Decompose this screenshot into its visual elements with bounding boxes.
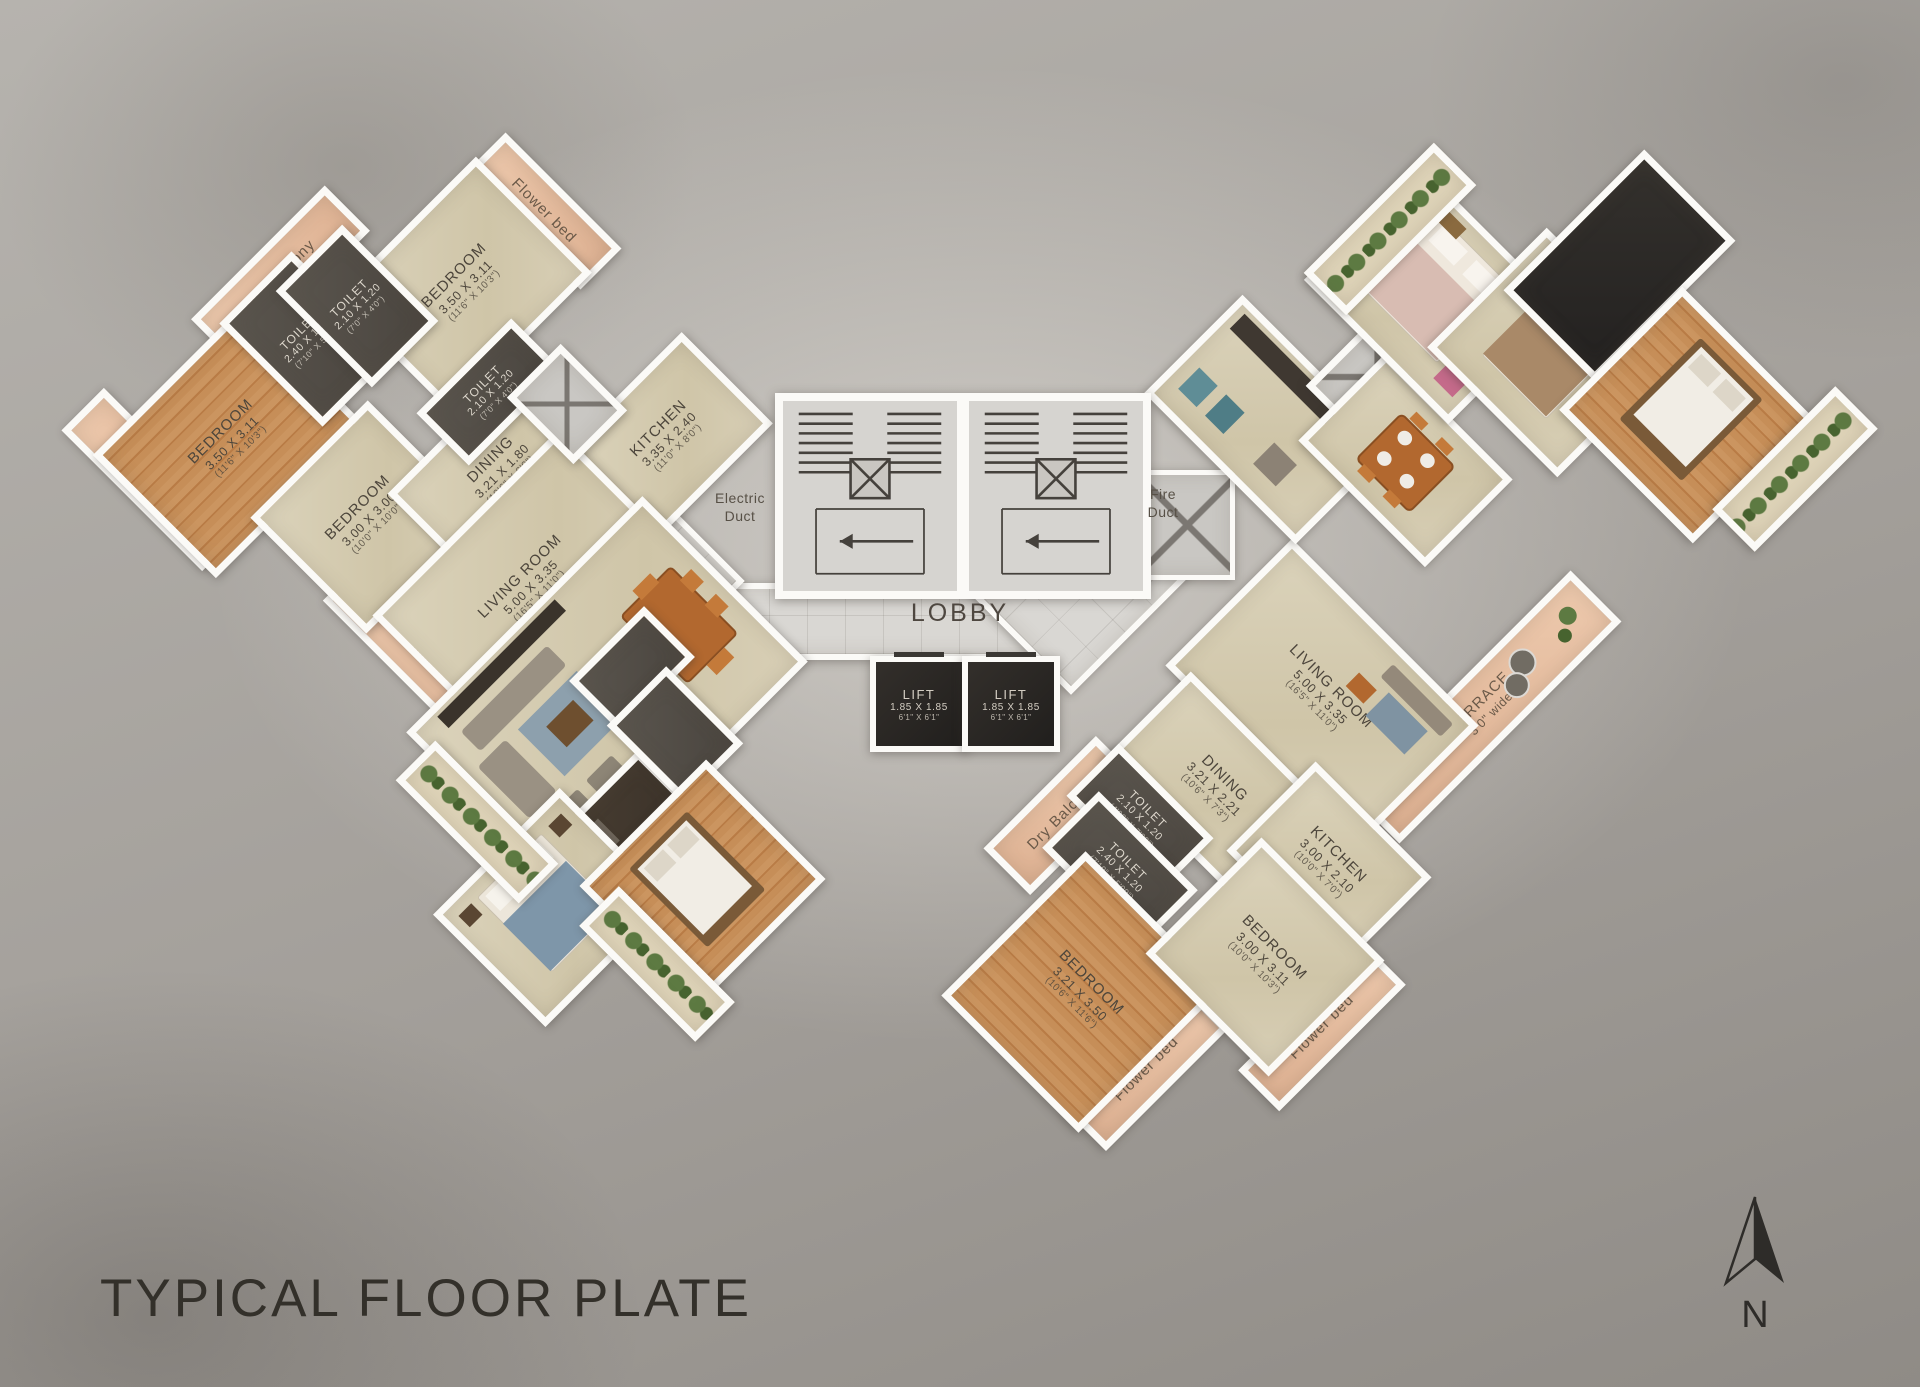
- north-arrow-icon: [1718, 1195, 1792, 1287]
- lobby-label: LOBBY: [900, 598, 1020, 629]
- lift-1-ft: 6'1" X 6'1": [890, 713, 948, 722]
- furnished-bedroom-left-blue-furniture-4: [458, 902, 482, 926]
- terrace-right-furniture-3: [1555, 626, 1575, 646]
- kitchen-left-label: KITCHEN3.35 X 2.40(11'0" X 8'0"): [626, 396, 707, 477]
- lift-2-label: LIFT: [982, 687, 1040, 702]
- staircase-core: [775, 393, 1151, 599]
- furnished-bedroom-left-blue-furniture-5: [547, 813, 571, 837]
- lift-2-dim: 1.85 X 1.85: [982, 702, 1040, 713]
- lift-1-label: LIFT: [890, 687, 948, 702]
- north-label: N: [1700, 1294, 1810, 1337]
- floor-plan-canvas: Flower bedDry BalconyFlower bedTERRACE3'…: [0, 0, 1920, 1387]
- staircase-right: [969, 401, 1143, 591]
- fire-duct-label: Fire Duct: [1128, 486, 1198, 521]
- terrace-right-furniture-2: [1555, 603, 1580, 628]
- electric-duct-label: Electric Duct: [700, 490, 780, 525]
- page-title: TYPICAL FLOOR PLATE: [100, 1268, 752, 1329]
- lift-2-ft: 6'1" X 6'1": [982, 713, 1040, 722]
- lift-1-dim: 1.85 X 1.85: [890, 702, 948, 713]
- staircase-left: [783, 401, 957, 591]
- furnished-kitchen-right-furniture-1: [1178, 367, 1218, 407]
- furnished-kitchen-right-furniture-3: [1253, 442, 1297, 486]
- bedroom-right-wood-label: BEDROOM3.21 X 3.50(10'6" X 11'6"): [1037, 947, 1126, 1036]
- north-indicator: N: [1700, 1195, 1810, 1337]
- bedroom-right-2-label: BEDROOM3.00 X 3.11(10'0" X 10'3"): [1220, 912, 1309, 1001]
- stair-divider-wall: [957, 401, 969, 591]
- bedroom-left-wood-label: BEDROOM3.50 X 3.11(11'6" X 10'3"): [185, 396, 274, 485]
- lift-1: LIFT 1.85 X 1.85 6'1" X 6'1": [870, 656, 968, 752]
- lift-2: LIFT 1.85 X 1.85 6'1" X 6'1": [962, 656, 1060, 752]
- furnished-dining-right-furniture-0: [1355, 413, 1456, 514]
- stair-flight-icon: [783, 401, 957, 591]
- furnished-kitchen-right-furniture-2: [1205, 394, 1245, 434]
- stair-flight-icon: [969, 401, 1143, 591]
- toilet-left-2-label: TOILET2.10 X 1.20(7'0" X 4'0"): [323, 272, 390, 339]
